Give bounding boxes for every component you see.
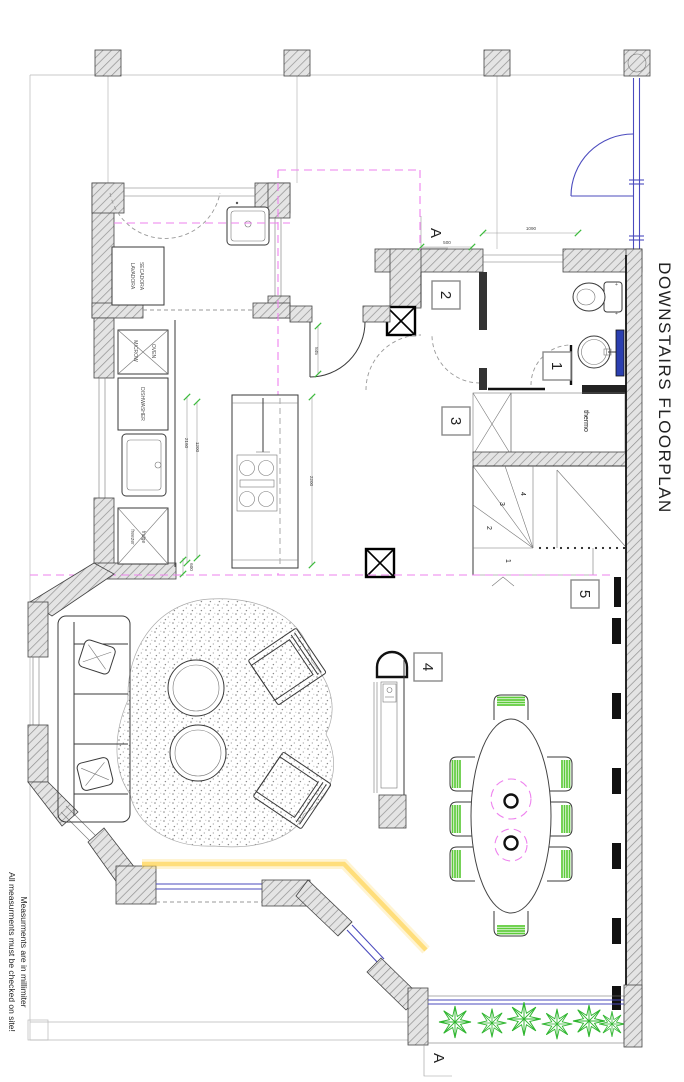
svg-text:A: A bbox=[430, 1053, 447, 1063]
wc-room: ++ 1 bbox=[479, 272, 626, 394]
dining-chair bbox=[547, 847, 572, 881]
dining-set bbox=[450, 695, 572, 936]
kitchen-run: MICROW OVEN DISHWASHER freezer fridge bbox=[94, 318, 176, 579]
kitchen-door: 845 bbox=[290, 306, 390, 377]
glazed-wall-and-entry-door bbox=[571, 78, 644, 249]
svg-text:845: 845 bbox=[314, 347, 319, 355]
vanity-counter bbox=[616, 330, 624, 376]
svg-text:3: 3 bbox=[447, 417, 464, 425]
svg-text:1090: 1090 bbox=[526, 226, 537, 231]
window-mullion bbox=[612, 618, 621, 644]
floorplan-drawing: LAVADORA SECADORA A 500 1090 2 ++ 1 bbox=[0, 0, 684, 1082]
pendant-light bbox=[505, 795, 518, 808]
laundry-room: LAVADORA SECADORA bbox=[92, 183, 290, 318]
fridge-freezer: freezer fridge bbox=[118, 508, 168, 564]
dim-kitchen-door: 845 bbox=[314, 323, 321, 377]
deck-column bbox=[624, 50, 650, 76]
deck-column bbox=[95, 50, 121, 76]
window-mullion bbox=[612, 986, 621, 1010]
stair-nosing-dots bbox=[539, 547, 625, 549]
dim-island-length: 2160 bbox=[184, 394, 190, 566]
thermo-closet: thermo 3 bbox=[442, 393, 625, 455]
svg-text:600: 600 bbox=[189, 563, 194, 571]
dishwasher: DISHWASHER bbox=[118, 378, 168, 430]
entry-vestibule: 2 bbox=[366, 272, 480, 390]
planter bbox=[428, 985, 642, 1047]
washer-dryer: LAVADORA SECADORA bbox=[112, 247, 164, 305]
svg-text:freezer: freezer bbox=[129, 529, 135, 545]
window-mullion bbox=[612, 918, 621, 944]
svg-text:2200: 2200 bbox=[309, 476, 314, 487]
plant bbox=[573, 1005, 605, 1037]
plant bbox=[507, 1002, 541, 1036]
svg-text:MICROW: MICROW bbox=[132, 340, 138, 362]
note-check: All measurments must be checked on site! bbox=[7, 872, 17, 1032]
svg-text:+: + bbox=[615, 311, 618, 317]
svg-text:+: + bbox=[615, 282, 618, 288]
ceiling-dashed-lines bbox=[30, 170, 612, 575]
thermo-label: thermo bbox=[582, 410, 589, 432]
dryer-label: SECADORA bbox=[138, 262, 144, 291]
plant bbox=[542, 1009, 572, 1039]
pendant-light bbox=[505, 837, 518, 850]
kitchen-sink bbox=[122, 434, 166, 496]
svg-text:3: 3 bbox=[498, 502, 505, 506]
microwave-oven-stack: MICROW OVEN bbox=[118, 330, 168, 374]
dim-island-side: 2200 bbox=[309, 394, 315, 568]
laundry-door-arc bbox=[110, 193, 220, 238]
dining-chair bbox=[450, 757, 475, 791]
coffee-table bbox=[168, 660, 224, 716]
structural-column bbox=[387, 307, 415, 335]
dim-entry-window: 1090 bbox=[480, 226, 581, 236]
sofa bbox=[58, 616, 130, 822]
svg-text:2: 2 bbox=[437, 291, 454, 299]
wc-basin bbox=[578, 330, 624, 376]
throw-pillow bbox=[76, 757, 114, 792]
section-marker-bottom: A bbox=[424, 1044, 452, 1076]
living-room bbox=[58, 599, 334, 847]
window-mullion bbox=[612, 843, 621, 869]
svg-text:DISHWASHER: DISHWASHER bbox=[139, 387, 145, 421]
svg-text:1200: 1200 bbox=[195, 442, 200, 453]
plant bbox=[599, 1011, 625, 1037]
window-mullion bbox=[612, 693, 621, 719]
dining-chair bbox=[494, 911, 528, 936]
chimney-base bbox=[379, 795, 406, 828]
toilet: ++ bbox=[573, 282, 622, 317]
fireplace-tv-wall: 4 bbox=[374, 652, 442, 828]
dim-island-worktop: 1200 bbox=[194, 399, 200, 561]
dining-table bbox=[471, 719, 551, 913]
page-title: DOWNSTAIRS FLOORPLAN bbox=[655, 262, 674, 514]
dining-chair bbox=[494, 695, 528, 720]
svg-text:1: 1 bbox=[548, 362, 565, 370]
svg-text:5: 5 bbox=[576, 590, 593, 598]
wood-stove bbox=[377, 652, 407, 677]
staircase: 4 3 2 1 5 bbox=[473, 452, 630, 608]
svg-text:OVEN: OVEN bbox=[150, 344, 156, 359]
svg-text:2160: 2160 bbox=[184, 438, 189, 449]
window-mullion bbox=[612, 768, 621, 794]
door-swing-arc bbox=[571, 134, 633, 196]
plant bbox=[439, 1006, 471, 1038]
svg-text:1: 1 bbox=[504, 559, 511, 563]
svg-text:4: 4 bbox=[419, 663, 436, 671]
svg-text:4: 4 bbox=[519, 492, 526, 496]
led-strip bbox=[142, 864, 426, 950]
deck-column bbox=[484, 50, 510, 76]
deck-column bbox=[284, 50, 310, 76]
dining-chair bbox=[547, 757, 572, 791]
coffee-table bbox=[170, 725, 226, 781]
svg-text:2: 2 bbox=[485, 526, 492, 530]
svg-text:fridge: fridge bbox=[140, 531, 146, 544]
note-units: Measurments are in millimiter bbox=[19, 897, 29, 1008]
svg-text:A: A bbox=[427, 228, 444, 238]
washer-label: LAVADORA bbox=[129, 263, 135, 290]
dining-chair bbox=[450, 847, 475, 881]
structural-column bbox=[366, 549, 394, 577]
svg-text:500: 500 bbox=[443, 240, 451, 245]
plant bbox=[478, 1009, 507, 1038]
kitchen-island: 2160 1200 2200 600 bbox=[180, 394, 315, 577]
floorplan-page: LAVADORA SECADORA A 500 1090 2 ++ 1 bbox=[0, 0, 684, 1082]
